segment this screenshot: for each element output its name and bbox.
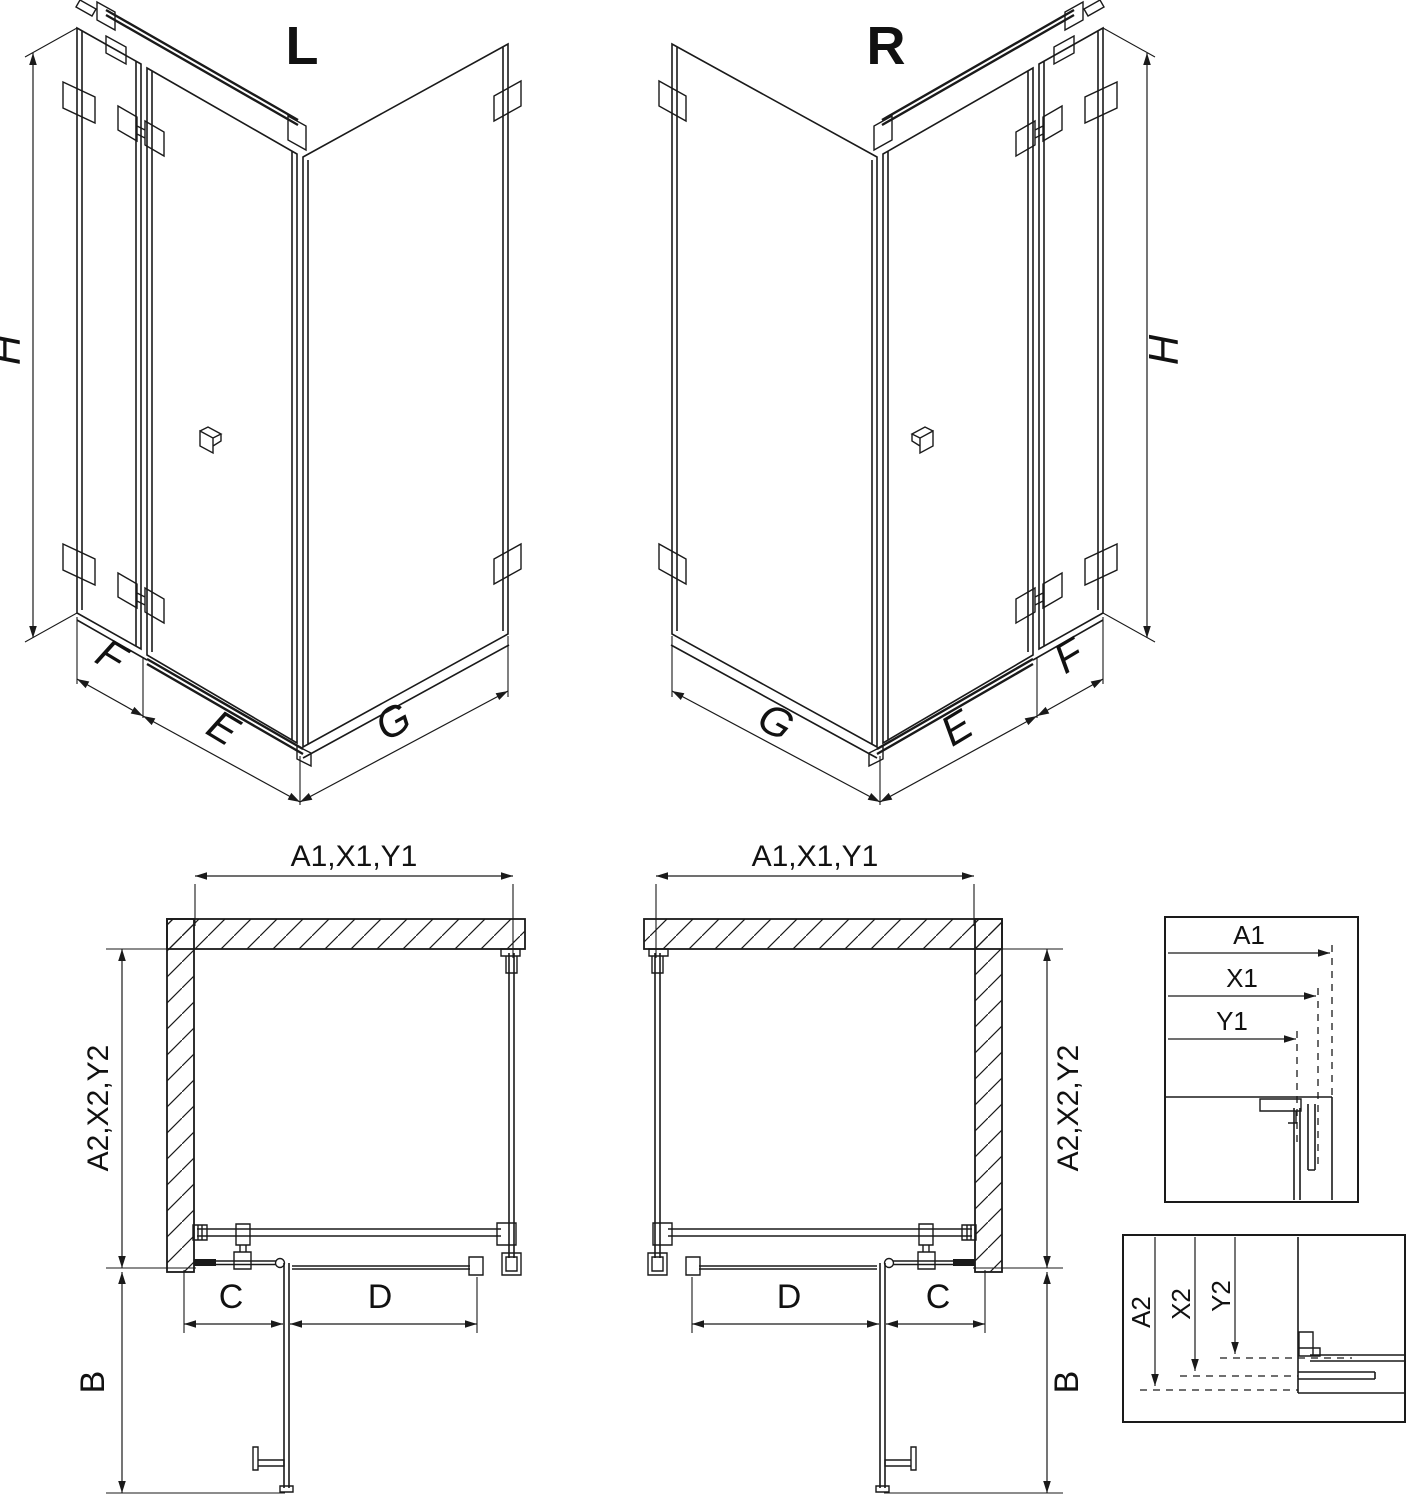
- dim-label-e-right: E: [932, 700, 981, 755]
- glass-plan-right: [655, 953, 972, 1488]
- technical-drawing-shower-enclosure: L H F E G R H F E G A1,X1,Y1 A2: [0, 0, 1416, 1499]
- variant-label-left: L: [286, 16, 319, 76]
- detail-label-y2: Y2: [1206, 1280, 1236, 1312]
- glass-panels-iso-left: [77, 28, 509, 758]
- dim-label-e-left: E: [199, 700, 248, 755]
- dim-label-swing-left-plan: B: [74, 1371, 112, 1394]
- detail-label-x1: X1: [1226, 963, 1258, 993]
- dim-label-f-right: F: [1045, 628, 1093, 683]
- detail-label-a2: A2: [1126, 1296, 1156, 1328]
- dim-label-door-left-plan: D: [368, 1278, 393, 1316]
- detail-label-a1: A1: [1233, 920, 1265, 950]
- wall-top-left-plan: [167, 919, 525, 949]
- dim-label-depth-left-plan: A2,X2,Y2: [82, 1045, 115, 1172]
- detail-box-width: A1 X1 Y1: [1165, 917, 1358, 1202]
- iso-view-left: L H F E G: [0, 0, 521, 805]
- detail-label-x2: X2: [1166, 1288, 1196, 1320]
- door-pivot-left-plan: [276, 1259, 285, 1268]
- dim-label-h-left: H: [0, 334, 29, 365]
- detail-box-depth: A2 X2 Y2: [1123, 1235, 1405, 1422]
- wall-top-right-plan: [644, 919, 1002, 949]
- iso-view-right: R H F E G: [659, 0, 1187, 805]
- detail-box-depth-frame: [1123, 1235, 1405, 1422]
- dim-label-width-right-plan: A1,X1,Y1: [752, 840, 879, 873]
- drawing-svg: L H F E G R H F E G A1,X1,Y1 A2: [0, 0, 1416, 1499]
- dim-label-door-right-plan: D: [777, 1278, 802, 1316]
- plan-view-right: A1,X1,Y1 A2,X2,Y2 B C D: [644, 840, 1086, 1493]
- dim-line-fixed-right: [1037, 679, 1103, 716]
- wall-side-left-plan: [167, 919, 194, 1272]
- hardware-plan-left: [193, 949, 521, 1492]
- door-pivot-right-plan: [885, 1259, 894, 1268]
- detail-bracket-width: [1260, 1099, 1301, 1123]
- detail-label-y1: Y1: [1216, 1006, 1248, 1036]
- dim-label-width-left-plan: A1,X1,Y1: [291, 840, 418, 873]
- glass-panels-iso-right: [671, 28, 1103, 758]
- dim-label-h-right: H: [1140, 334, 1187, 365]
- hardware-plan-right: [648, 949, 976, 1492]
- detail-profile-width: [1165, 1097, 1332, 1200]
- dim-label-fixed-left-plan: C: [219, 1278, 244, 1316]
- dim-line-fixed-left: [77, 679, 143, 716]
- dim-label-swing-right-plan: B: [1048, 1371, 1086, 1394]
- extension-lines-iso-right: [672, 28, 1155, 805]
- glass-plan-left: [197, 953, 514, 1488]
- extension-lines-iso-left: [25, 28, 508, 805]
- detail-box-width-frame: [1165, 917, 1358, 1202]
- plan-view-left: A1,X1,Y1 A2,X2,Y2 B C D: [74, 840, 525, 1493]
- dim-label-g-left: G: [367, 693, 418, 750]
- detail-bracket-depth: [1299, 1332, 1320, 1356]
- dim-label-f-left: F: [88, 629, 136, 684]
- variant-label-right: R: [867, 16, 906, 76]
- detail-profile-depth: [1298, 1237, 1405, 1393]
- wall-profile-fill-right-plan: [953, 1259, 975, 1266]
- detail-ref-dashes-depth: [1140, 1358, 1352, 1390]
- wall-profile-fill-left-plan: [194, 1259, 216, 1266]
- dim-label-fixed-right-plan: C: [926, 1278, 951, 1316]
- wall-side-right-plan: [975, 919, 1002, 1272]
- dim-label-depth-right-plan: A2,X2,Y2: [1052, 1045, 1085, 1172]
